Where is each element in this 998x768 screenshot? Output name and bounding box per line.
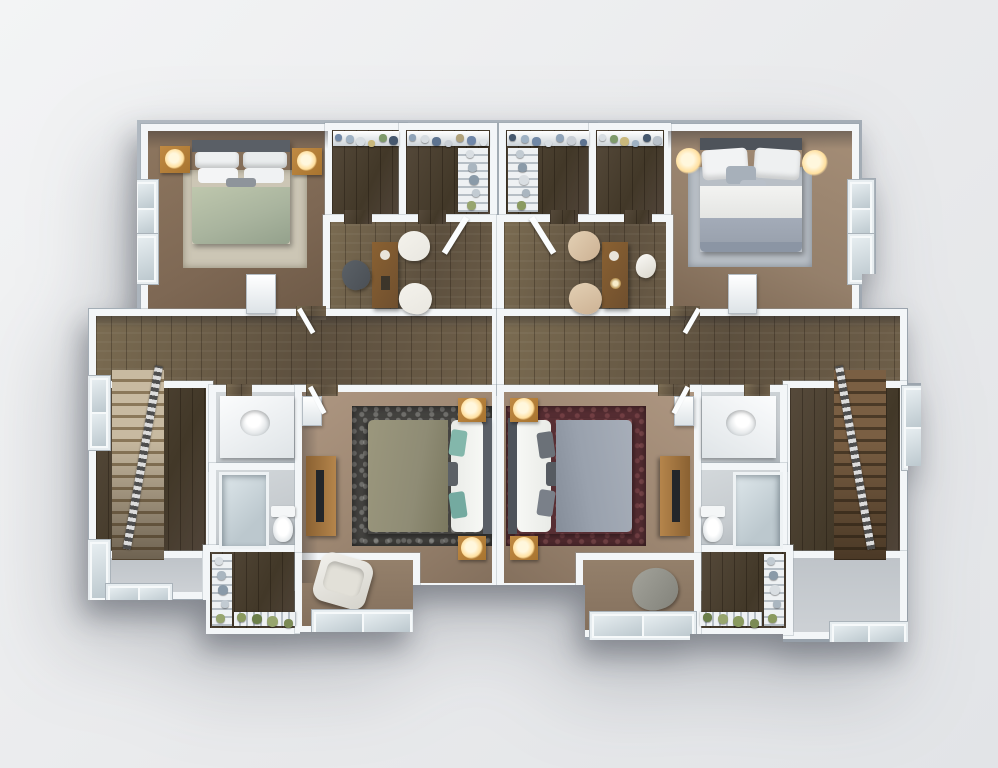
sink-left xyxy=(240,410,270,436)
window-hall-left-1 xyxy=(88,376,110,450)
clothing-item-icon xyxy=(221,600,229,608)
clothing-item-icon xyxy=(409,134,416,141)
clothing-item-icon xyxy=(216,614,225,623)
bed-master-left-headboard xyxy=(483,418,492,534)
lamp-topleft-left xyxy=(165,149,185,169)
clothing-item-icon xyxy=(217,571,226,580)
clothing-item-icon xyxy=(335,134,342,141)
hall-right-shadow xyxy=(504,316,900,328)
closet-bottom-right-shelves xyxy=(764,554,784,626)
clothing-item-icon xyxy=(445,140,452,147)
clothing-item-icon xyxy=(469,175,479,185)
window-landing-right xyxy=(830,622,908,646)
bed-master-right-headboard xyxy=(508,418,517,534)
bed-master-left xyxy=(368,418,492,534)
dresser-master-left xyxy=(306,456,336,536)
closet-left-2-shelves xyxy=(458,148,488,212)
dresser-topright xyxy=(728,274,757,314)
toilet-right-bowl xyxy=(703,516,723,542)
desk-right-lamp xyxy=(610,278,621,289)
armchair-master-left-cushion xyxy=(321,559,366,598)
bed-topleft-pillow-1 xyxy=(195,152,239,168)
clothing-item-icon xyxy=(643,134,651,142)
guest-chair-left-1 xyxy=(398,231,430,261)
closet-right-1-shelves xyxy=(508,148,538,212)
clothing-item-icon xyxy=(421,135,429,143)
bed-master-right-accent-gray-1 xyxy=(536,431,555,459)
clothing-item-icon xyxy=(215,557,223,565)
clothing-item-icon xyxy=(599,134,606,141)
bed-topright-headboard xyxy=(700,138,802,150)
bed-master-right xyxy=(508,418,632,534)
landing-right-floor xyxy=(790,558,900,632)
clothing-item-icon xyxy=(237,613,246,622)
window-stairwell-right xyxy=(902,386,926,470)
window-pane xyxy=(138,238,154,280)
bed-topleft-pillow-2 xyxy=(243,152,287,168)
window-pane xyxy=(92,544,106,598)
clothing-item-icon xyxy=(750,619,759,628)
clothing-item-icon xyxy=(346,135,354,143)
clothing-item-icon xyxy=(379,134,387,142)
clothing-item-icon xyxy=(472,189,480,197)
window-pane xyxy=(852,210,870,234)
bed-topleft-headboard xyxy=(192,140,290,152)
window-pane xyxy=(852,238,870,280)
dresser-master-right xyxy=(660,456,690,536)
bed-topleft-accent-pillow xyxy=(226,178,256,187)
clothing-item-icon xyxy=(456,134,464,142)
clothing-item-icon xyxy=(733,616,744,627)
toilet-left-bowl xyxy=(273,516,293,542)
desk-left-accessory xyxy=(380,250,390,260)
clothing-item-icon xyxy=(718,614,728,624)
desk-right xyxy=(602,242,628,308)
desk-right-accessory xyxy=(609,251,619,261)
closet-left-1-rod xyxy=(333,131,399,146)
clothing-item-icon xyxy=(770,585,780,595)
door-opening-closet-left-1 xyxy=(344,210,372,224)
door-opening-bath-right xyxy=(744,384,770,396)
door-opening-bath-left xyxy=(226,384,252,396)
hall-left-shadow xyxy=(96,316,492,328)
bed-topright xyxy=(700,138,802,252)
bed-master-right-duvet xyxy=(556,420,632,532)
desk-left xyxy=(372,242,398,308)
clothing-item-icon xyxy=(767,557,775,565)
clothing-item-icon xyxy=(556,134,564,142)
window-pane xyxy=(110,588,138,602)
bed-topright-foot-ruffle xyxy=(700,242,802,252)
clothing-item-icon xyxy=(545,140,552,147)
window-pane xyxy=(138,210,154,234)
bed-topleft-duvet xyxy=(192,187,290,244)
lamp-topright-right xyxy=(802,150,828,176)
clothing-item-icon xyxy=(516,150,524,158)
window-landing-left xyxy=(106,584,172,606)
clothing-item-icon xyxy=(267,616,278,627)
clothing-item-icon xyxy=(467,201,476,210)
closet-right-2-rod xyxy=(597,131,663,146)
door-opening-closet-left-2 xyxy=(418,210,446,224)
bed-master-left-accent-teal-2 xyxy=(448,491,467,519)
clothing-item-icon xyxy=(480,139,487,146)
window-pane xyxy=(870,626,904,642)
clothing-item-icon xyxy=(653,136,662,145)
window-pane xyxy=(140,588,168,602)
tv-master-right xyxy=(672,470,680,522)
window-pane xyxy=(92,380,106,412)
window-bedroom-topright-1 xyxy=(848,180,874,238)
bed-topright-duvet-bottom xyxy=(700,218,802,244)
clothing-item-icon xyxy=(389,136,398,145)
desk-left-laptop xyxy=(381,276,390,290)
clothing-item-icon xyxy=(620,137,629,146)
closet-right-1-rod xyxy=(507,131,589,146)
window-pane xyxy=(594,616,642,636)
bed-topright-pillow-2 xyxy=(753,147,801,180)
lamp-topleft-right xyxy=(297,151,317,171)
clothing-item-icon xyxy=(284,619,293,628)
lamp-master-left-bottom xyxy=(461,537,483,559)
dresser-topleft xyxy=(246,274,276,314)
window-pane xyxy=(852,184,870,208)
closet-left-2-rod xyxy=(407,131,489,146)
clothing-item-icon xyxy=(567,136,576,145)
closet-bottom-left-shelves xyxy=(212,554,232,626)
window-bedroom-topleft-2 xyxy=(134,234,158,284)
closet-bottom-right-rail xyxy=(700,612,762,626)
window-pane xyxy=(834,626,868,642)
shower-left xyxy=(219,472,269,549)
clothing-item-icon xyxy=(773,600,781,608)
clothing-item-icon xyxy=(509,134,516,141)
clothing-item-icon xyxy=(610,135,618,143)
clothing-item-icon xyxy=(252,614,262,624)
lamp-topright-left xyxy=(676,148,702,174)
window-master-left xyxy=(312,610,414,636)
clothing-item-icon xyxy=(703,613,712,622)
clothing-item-icon xyxy=(518,163,527,172)
bed-master-left-duvet xyxy=(368,420,448,532)
window-pane xyxy=(644,616,692,636)
door-opening-closet-right-1 xyxy=(550,210,578,224)
bed-topright-duvet-top xyxy=(700,186,802,218)
window-pane xyxy=(138,184,154,208)
bed-topleft xyxy=(192,140,290,244)
clothing-item-icon xyxy=(632,140,639,147)
lamp-master-left-top xyxy=(461,398,483,420)
clothing-item-icon xyxy=(467,136,476,145)
clothing-item-icon xyxy=(519,175,529,185)
clothing-item-icon xyxy=(466,150,474,158)
clothing-item-icon xyxy=(532,137,541,146)
window-pane xyxy=(92,414,106,446)
building-plan xyxy=(0,0,998,768)
tv-master-left xyxy=(316,470,324,522)
sink-right xyxy=(726,410,756,436)
window-pane xyxy=(906,390,922,427)
shower-right xyxy=(733,472,783,549)
bed-master-right-accent-gray-2 xyxy=(536,489,555,517)
clothing-item-icon xyxy=(769,571,778,580)
lamp-master-right-top xyxy=(513,398,535,420)
window-master-right xyxy=(590,612,696,640)
window-pane xyxy=(364,614,410,632)
clothing-item-icon xyxy=(522,189,530,197)
window-pane xyxy=(316,614,362,632)
clothing-item-icon xyxy=(580,139,587,146)
clothing-item-icon xyxy=(768,614,777,623)
window-bedroom-topleft-1 xyxy=(134,180,158,238)
clothing-item-icon xyxy=(521,135,529,143)
clothing-item-icon xyxy=(356,137,365,146)
clothing-item-icon xyxy=(517,201,526,210)
window-pane xyxy=(906,429,922,466)
clothing-item-icon xyxy=(432,137,441,146)
clothing-item-icon xyxy=(218,585,228,595)
clothing-item-icon xyxy=(468,163,477,172)
lamp-master-right-bottom xyxy=(513,537,535,559)
rooms-layer xyxy=(0,0,998,768)
door-opening-closet-right-2 xyxy=(624,210,652,224)
closet-bottom-left-rail xyxy=(234,612,296,626)
floor-plan-image xyxy=(0,0,998,768)
clothing-item-icon xyxy=(368,140,375,147)
window-bedroom-topright-2 xyxy=(848,234,874,284)
